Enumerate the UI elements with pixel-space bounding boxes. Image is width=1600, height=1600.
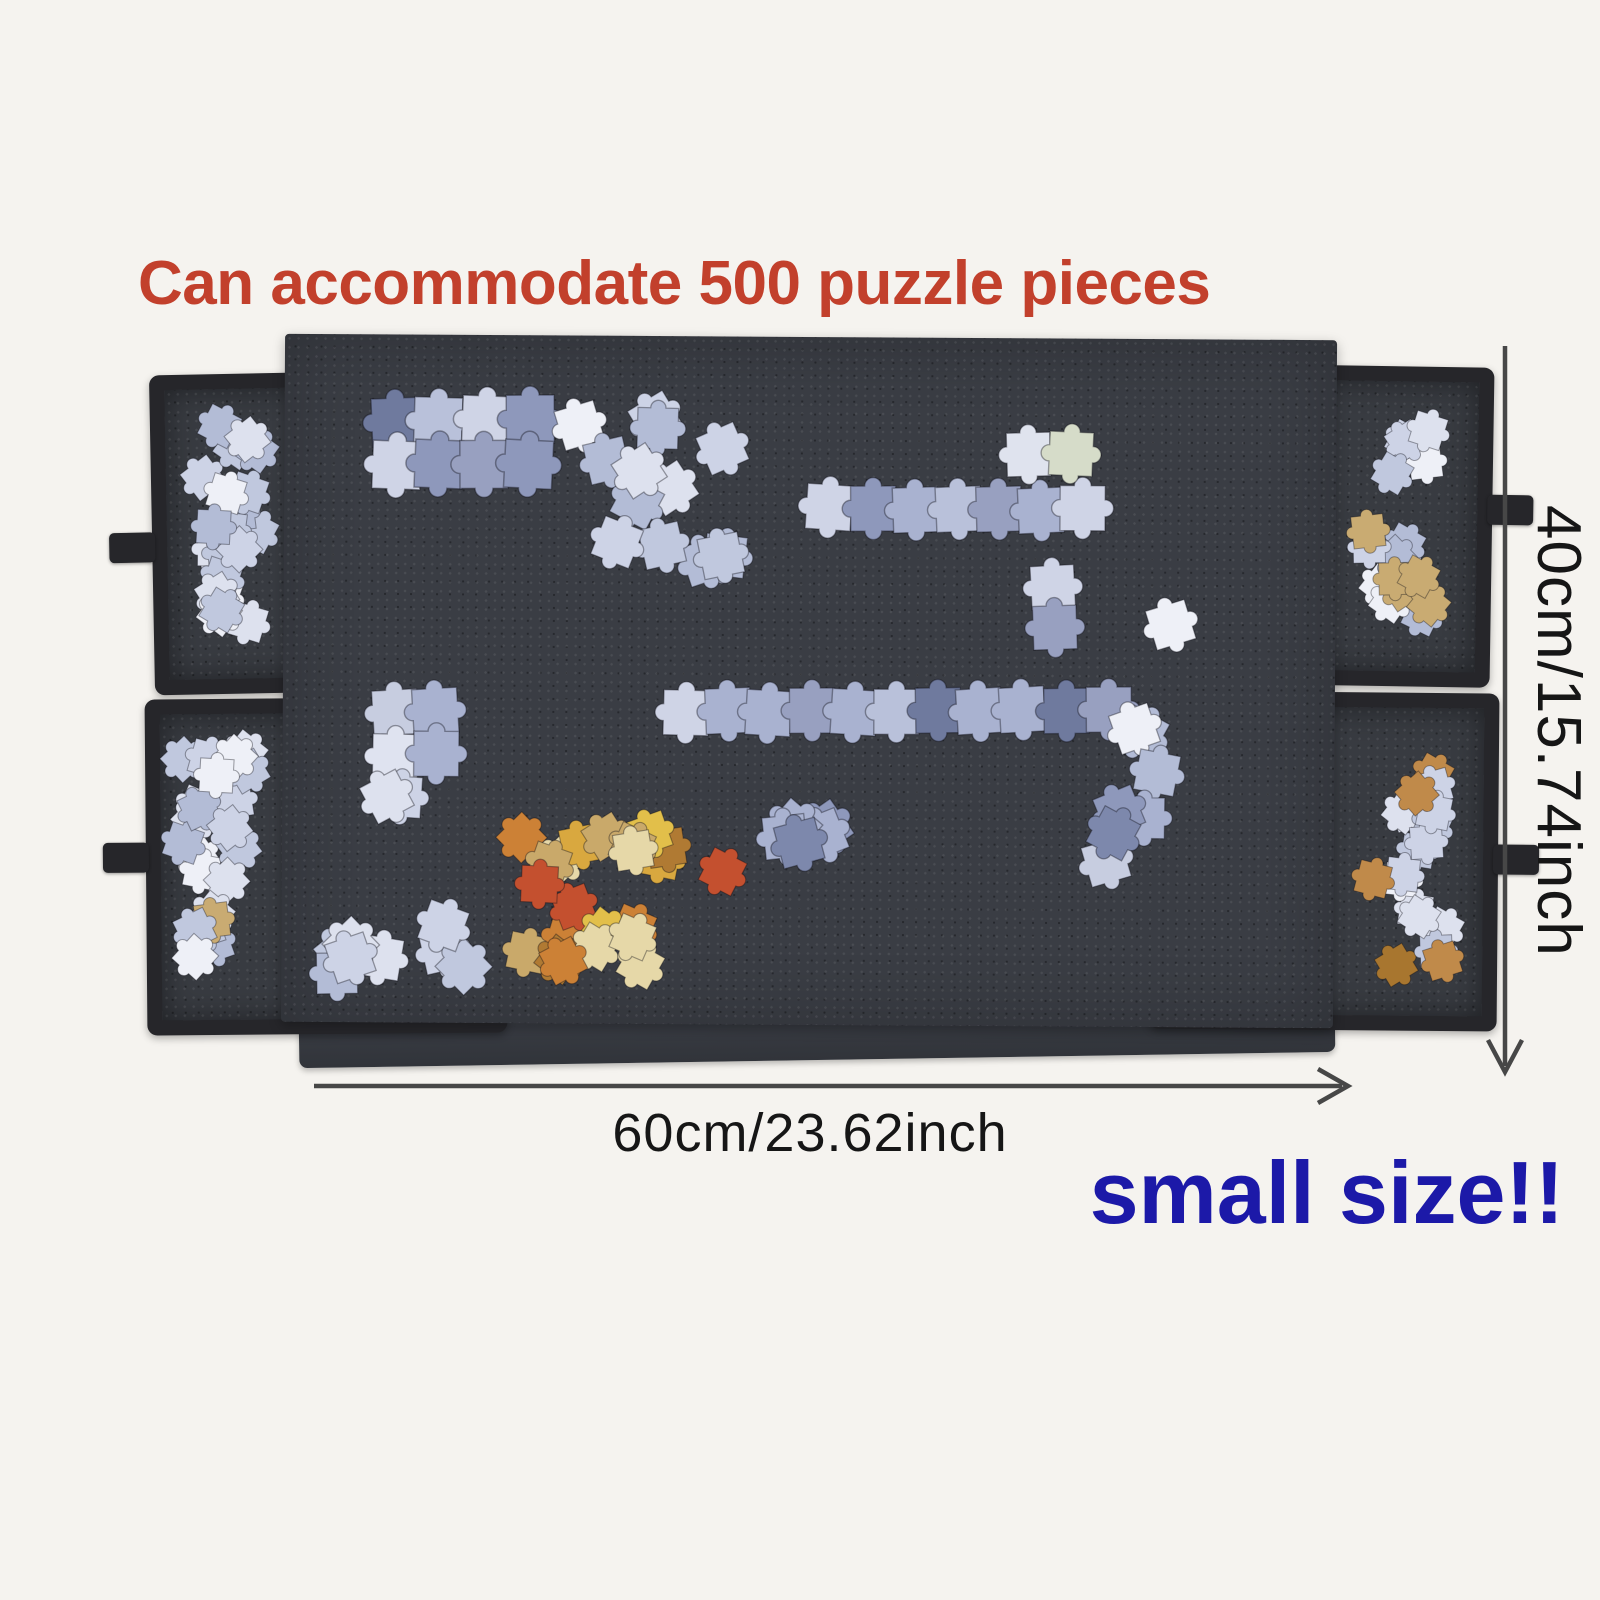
tray-handle-top-left xyxy=(109,532,156,563)
height-dimension-label: 40cm/15.74inch xyxy=(1523,505,1594,957)
width-dimension-arrow xyxy=(314,1069,1348,1103)
tray-handle-bottom-left xyxy=(103,843,149,873)
headline: Can accommodate 500 puzzle pieces xyxy=(138,248,1210,319)
puzzle-board xyxy=(281,334,1337,1028)
width-dimension-label: 60cm/23.62inch xyxy=(595,1102,1025,1164)
product-photo: Can accommodate 500 puzzle pieces xyxy=(0,0,1600,1600)
size-caption: small size!! xyxy=(1090,1142,1564,1244)
